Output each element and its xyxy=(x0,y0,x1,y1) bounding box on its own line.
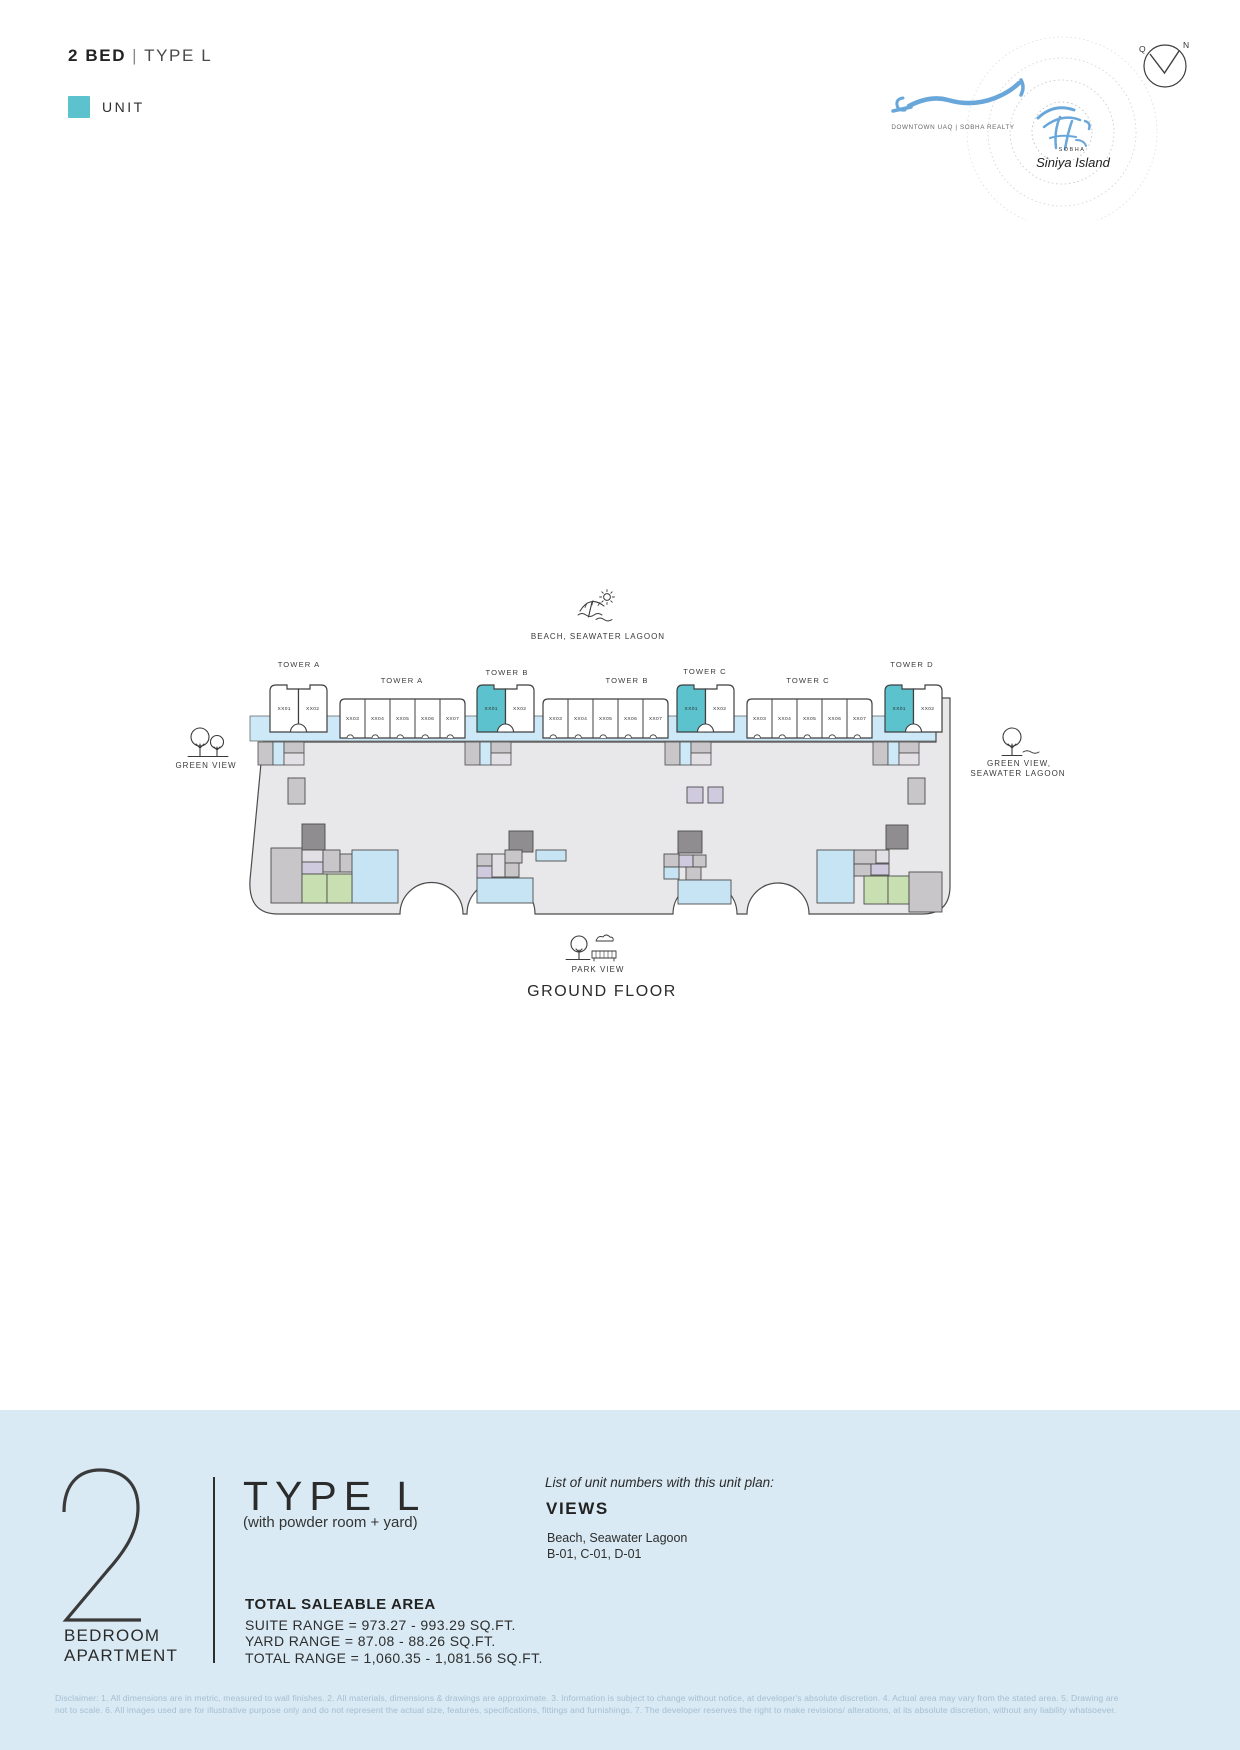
unit-number: XX03 xyxy=(753,716,766,722)
service-box xyxy=(288,778,305,804)
bedroom-caption-line2: APARTMENT xyxy=(64,1646,178,1666)
unit-number: XX04 xyxy=(574,716,587,722)
unit-number: XX02 xyxy=(713,706,726,712)
park-view-icon xyxy=(566,935,616,961)
logo-script-text: Siniya Island xyxy=(1036,155,1110,170)
beach-view-label: BEACH, SEAWATER LAGOON xyxy=(531,632,665,641)
disclaimer-line1: Disclaimer: 1. All dimensions are in met… xyxy=(55,1692,1187,1704)
page-title: 2 BED|TYPE L xyxy=(68,46,212,66)
unit-number: XX01 xyxy=(278,706,291,712)
green-view-right-icon xyxy=(1002,728,1039,756)
logo-brand-text: SOBHA xyxy=(1059,147,1086,153)
unit-number: XX02 xyxy=(306,706,319,712)
page-title-type: TYPE L xyxy=(144,46,212,65)
tower-c-unit-block: XX03 XX04 XX05 XX06 XX07 xyxy=(747,699,872,738)
tower-a-pair-label: TOWER A xyxy=(278,660,321,669)
service-box xyxy=(687,787,703,803)
service-box xyxy=(708,787,723,803)
unit-number: XX05 xyxy=(803,716,816,722)
green-view-right-label-1: GREEN VIEW, xyxy=(987,759,1051,768)
unit-number: XX07 xyxy=(446,716,459,722)
tower-b-pair-label: TOWER B xyxy=(486,668,529,677)
unit-number: XX02 xyxy=(513,706,526,712)
tower-a-block-label: TOWER A xyxy=(381,676,424,685)
unit-number: XX05 xyxy=(599,716,612,722)
unit-number: XX01 xyxy=(685,706,698,712)
unit-color-swatch xyxy=(68,96,90,118)
disclaimer: Disclaimer: 1. All dimensions are in met… xyxy=(55,1692,1187,1717)
unit-legend-swatch xyxy=(68,96,90,118)
unit-number: XX07 xyxy=(649,716,662,722)
unit-numbers-value: B-01, C-01, D-01 xyxy=(547,1547,641,1561)
compass-icon: Q N xyxy=(1139,40,1189,87)
bedroom-caption-line1: BEDROOM xyxy=(64,1626,178,1646)
unit-number: XX05 xyxy=(396,716,409,722)
unit-number: XX02 xyxy=(921,706,934,712)
core-cluster-tower-d xyxy=(873,742,919,765)
unit-number: XX06 xyxy=(828,716,841,722)
type-title: TYPE L xyxy=(243,1473,426,1520)
disclaimer-line2: not to scale. 6. All images used are for… xyxy=(55,1704,1187,1716)
tower-a-unit-block: XX03 XX04 XX05 XX06 XX07 xyxy=(340,699,465,738)
tower-d-pair-label: TOWER D xyxy=(890,660,933,669)
compass-n-label: N xyxy=(1183,40,1189,50)
beach-icon xyxy=(578,590,614,621)
tower-c-pair-label: TOWER C xyxy=(683,667,726,676)
green-view-left-icon xyxy=(188,728,228,757)
footer-divider xyxy=(213,1477,215,1663)
unit-number: XX03 xyxy=(346,716,359,722)
unit-number: XX06 xyxy=(421,716,434,722)
logo-calligraphy-icon xyxy=(893,80,1090,149)
tower-c-block-label: TOWER C xyxy=(786,676,829,685)
logo-location-text: DOWNTOWN UAQ | SOBHA REALTY xyxy=(891,124,1014,131)
core-cluster-tower-c xyxy=(665,742,711,765)
unit-number: XX01 xyxy=(893,706,906,712)
area-heading: TOTAL SALEABLE AREA xyxy=(245,1596,436,1613)
unit-number: XX06 xyxy=(624,716,637,722)
bedroom-caption: BEDROOM APARTMENT xyxy=(64,1626,178,1666)
page-title-separator: | xyxy=(126,46,144,65)
service-box xyxy=(908,778,925,804)
yard-range: YARD RANGE = 87.08 - 88.26 SQ.FT. xyxy=(245,1633,543,1649)
green-view-right-label-2: SEAWATER LAGOON xyxy=(970,769,1065,778)
unit-legend: UNIT xyxy=(68,96,145,118)
tower-b-unit-block: XX03 XX04 XX05 XX06 XX07 xyxy=(543,699,668,738)
total-range: TOTAL RANGE = 1,060.35 - 1,081.56 SQ.FT. xyxy=(245,1650,543,1666)
page-title-bed: 2 BED xyxy=(68,46,126,65)
floor-title: GROUND FLOOR xyxy=(527,983,677,1000)
type-subtitle: (with powder room + yard) xyxy=(243,1514,418,1531)
unit-number: XX04 xyxy=(778,716,791,722)
compass-q-label: Q xyxy=(1139,44,1146,54)
unit-number: XX07 xyxy=(853,716,866,722)
unit-number: XX04 xyxy=(371,716,384,722)
views-heading: VIEWS xyxy=(546,1499,609,1519)
tower-b-block-label: TOWER B xyxy=(606,676,649,685)
suite-range: SUITE RANGE = 973.27 - 993.29 SQ.FT. xyxy=(245,1617,543,1633)
core-cluster-tower-a xyxy=(258,742,304,765)
core-cluster-tower-b xyxy=(465,742,511,765)
unit-legend-label: UNIT xyxy=(102,99,145,115)
ground-floor-plan: BEACH, SEAWATER LAGOON xyxy=(150,575,1140,1015)
green-view-left-label: GREEN VIEW xyxy=(175,761,236,770)
views-value: Beach, Seawater Lagoon xyxy=(547,1531,687,1545)
unit-number: XX03 xyxy=(549,716,562,722)
brand-logo: DOWNTOWN UAQ | SOBHA REALTY SOBHA Siniya… xyxy=(780,20,1210,220)
unit-number: XX01 xyxy=(485,706,498,712)
units-list-intro: List of unit numbers with this unit plan… xyxy=(545,1475,774,1490)
area-lines: SUITE RANGE = 973.27 - 993.29 SQ.FT. YAR… xyxy=(245,1617,543,1666)
park-view-label: PARK VIEW xyxy=(572,965,625,974)
